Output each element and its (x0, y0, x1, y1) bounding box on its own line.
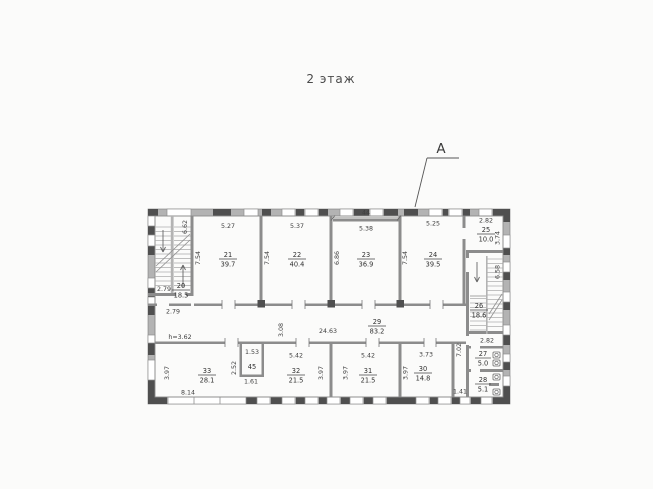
room-number: 33 (203, 367, 211, 375)
room-area: 5.1 (478, 386, 489, 394)
room-label-21: 21 39.7 (219, 251, 237, 269)
window-opening (244, 209, 258, 216)
partition-wall (155, 342, 225, 345)
window-opening (449, 209, 462, 216)
room-area: 28.1 (200, 377, 215, 385)
window-opening (503, 292, 510, 302)
room-area: 10.0 (479, 236, 494, 244)
partition-wall (333, 219, 399, 222)
dim-3-97-room30: 3.97 (403, 366, 410, 380)
wall-pier (471, 397, 481, 404)
wall-pier (503, 386, 510, 397)
window-opening (305, 397, 318, 404)
partition-wall (309, 342, 366, 345)
window-opening (148, 335, 155, 343)
partition-wall (191, 216, 194, 296)
room-number: 22 (293, 251, 301, 259)
partition-wall (240, 344, 243, 377)
window-opening (429, 209, 442, 216)
page-title: 2 этаж (306, 72, 355, 86)
dim-5-42-room32: 5.42 (289, 353, 303, 360)
dim-7-54-room21: 7.54 (195, 251, 202, 265)
partition-wall (330, 344, 333, 397)
partition-wall (480, 369, 503, 372)
window-opening (460, 397, 470, 404)
partition-wall (169, 304, 191, 307)
window-opening (305, 209, 318, 216)
window-opening (503, 354, 510, 362)
window-opening (340, 209, 353, 216)
partition-wall (466, 250, 503, 253)
room-label-30: 30 14.8 (414, 365, 432, 383)
window-opening (168, 397, 246, 404)
toilet-icon (493, 389, 500, 395)
room-label-23: 23 36.9 (357, 251, 375, 269)
partition-wall (443, 304, 466, 307)
wall-pier (404, 209, 418, 216)
dim-3-97-room32: 3.97 (318, 366, 325, 380)
room-area: 18.5 (174, 292, 189, 300)
pilaster (258, 300, 266, 308)
wall-pier (503, 209, 510, 222)
wall-pier (148, 246, 155, 255)
window-opening (370, 209, 383, 216)
partition-wall (262, 344, 265, 377)
room-number: 27 (479, 350, 487, 358)
section-marker: A (415, 141, 459, 207)
wall-pier (148, 380, 155, 397)
dim-6-58: 6.58 (495, 265, 502, 279)
room-label-32: 32 21.5 (287, 367, 305, 385)
dim-1-61: 1.61 (244, 379, 258, 386)
window-opening (503, 376, 510, 386)
wall-pier (463, 209, 470, 216)
wall-pier (271, 397, 282, 404)
window-opening (148, 216, 155, 226)
partition-wall (240, 375, 265, 378)
partition-wall (466, 272, 469, 334)
window-opening (282, 397, 295, 404)
pilaster (397, 300, 405, 308)
room-number: 29 (373, 318, 381, 326)
wall-pier (319, 209, 328, 216)
window-opening (503, 325, 510, 335)
toilet-icon (493, 374, 500, 380)
dim-3-74: 3.74 (495, 231, 502, 245)
dim-6-62: 6.62 (182, 220, 189, 234)
dim-2-79-inner: 2.79 (157, 286, 171, 293)
room-number: 20 (177, 282, 185, 290)
dim-3-73: 3.73 (419, 352, 433, 359)
wall-pier (148, 305, 155, 315)
dim-3-08: 3.08 (278, 323, 285, 337)
dim-7-54-room24: 7.54 (402, 251, 409, 265)
room-label-28: 28 5.1 (475, 376, 491, 394)
window-opening (148, 360, 155, 380)
partition-wall (238, 342, 296, 345)
partition-wall (480, 346, 503, 349)
wall-pier (503, 272, 510, 280)
room-area: 36.9 (359, 261, 374, 269)
wall-pier (503, 362, 510, 370)
wall-pier (246, 397, 257, 404)
window-opening (503, 262, 510, 272)
dim-1-53: 1.53 (245, 349, 259, 356)
room-area: 21.5 (361, 377, 376, 385)
room-number: 25 (482, 226, 490, 234)
partition-wall (148, 293, 176, 296)
room-number: 32 (292, 367, 300, 375)
room-area: 39.7 (221, 261, 236, 269)
partition-wall (194, 304, 222, 307)
room-label-22: 22 40.4 (288, 251, 306, 269)
partition-wall (399, 344, 402, 397)
wall-pier (262, 209, 271, 216)
window-opening (479, 209, 492, 216)
dim-5-38: 5.38 (359, 226, 373, 233)
wall-pier (148, 226, 155, 235)
room-area: 18.6 (472, 312, 487, 320)
wall-pier (341, 397, 350, 404)
wall-pier (148, 343, 155, 355)
room-number: 45 (248, 363, 256, 371)
dim-5-25: 5.25 (426, 221, 440, 228)
stair-stringer (486, 256, 488, 334)
partition-wall (466, 331, 503, 334)
section-marker-leader-line (415, 158, 427, 207)
room-number: 31 (364, 367, 372, 375)
wall-pier (319, 397, 327, 404)
toilet-icon (493, 360, 500, 366)
window-opening (327, 397, 340, 404)
wall-pier (503, 248, 510, 255)
stair-stringer (171, 216, 174, 293)
pilaster (328, 300, 336, 308)
window-opening (416, 397, 429, 404)
section-marker-label: A (436, 141, 446, 157)
partition-wall (148, 304, 157, 307)
window-opening (438, 397, 451, 404)
room-label-33: 33 28.1 (198, 367, 216, 385)
floor-plan-drawing: 2 этаж A 2.79 2.79 6.62 5.27 5.37 44 5.3… (0, 0, 653, 489)
dim-5-27: 5.27 (221, 223, 235, 230)
room-area: 14.8 (416, 375, 431, 383)
dim-6-86-room23: 6.86 (334, 251, 341, 265)
window-opening (148, 235, 155, 246)
dim-5-42-room31: 5.42 (361, 353, 375, 360)
dim-2-82-top: 2.82 (479, 218, 493, 225)
room-area: 83.2 (370, 328, 385, 336)
wall-pier (503, 335, 510, 345)
floor-plan-page: 2 этаж A 2.79 2.79 6.62 5.27 5.37 44 5.3… (0, 0, 653, 489)
toilet-icon (493, 352, 500, 358)
sink-icon (489, 383, 499, 386)
room-label-45: 45 (248, 363, 256, 371)
room-number: 26 (475, 302, 483, 310)
window-opening (350, 397, 363, 404)
window-opening (282, 209, 295, 216)
dim-2-79-lower: 2.79 (166, 309, 180, 316)
partition-wall (260, 216, 263, 304)
wall-pier (387, 397, 416, 404)
ceiling-height-note: h=3.62 (168, 334, 191, 341)
dim-7-02: 7.02 (456, 343, 463, 357)
room-label-29: 29 83.2 (368, 318, 386, 336)
wall-pier (213, 209, 231, 216)
wall-pier (503, 302, 510, 310)
wc-fixtures (489, 352, 500, 395)
wall-pier (443, 209, 448, 216)
window-opening (167, 209, 191, 216)
wall-pier (296, 209, 304, 216)
dim-44: 44 (362, 210, 370, 217)
partition-wall (463, 239, 466, 306)
partition-wall (466, 334, 469, 336)
room-label-20: 20 18.5 (172, 282, 190, 300)
window-opening (373, 397, 386, 404)
dim-2-52: 2.52 (231, 361, 238, 375)
room-label-27: 27 5.0 (475, 350, 491, 368)
interior-partitions (148, 216, 503, 397)
room-number: 23 (362, 251, 370, 259)
room-number: 30 (419, 365, 427, 373)
wall-pier (148, 397, 167, 404)
dim-7-54-room22: 7.54 (264, 251, 271, 265)
room-label-24: 24 39.5 (424, 251, 442, 269)
room-area: 5.0 (478, 360, 489, 368)
window-opening (503, 235, 510, 248)
wall-pier (452, 397, 460, 404)
dim-5-37: 5.37 (290, 223, 304, 230)
dim-3-97-room33: 3.97 (164, 366, 171, 380)
room-number: 24 (429, 251, 437, 259)
partition-wall (463, 216, 466, 228)
dim-8-14: 8.14 (181, 390, 195, 397)
room-label-25: 25 10.0 (477, 226, 495, 244)
partition-wall (469, 369, 471, 372)
wall-pier (296, 397, 305, 404)
partition-wall (469, 346, 471, 349)
dim-2-82-vestibule: 2.82 (480, 338, 494, 345)
wall-pier (430, 397, 438, 404)
wall-pier (493, 397, 510, 404)
room-area: 39.5 (426, 261, 441, 269)
room-number: 21 (224, 251, 232, 259)
wall-pier (148, 209, 155, 216)
partition-wall (466, 253, 469, 258)
stair-break-line (489, 300, 502, 320)
partition-wall (330, 216, 333, 304)
window-opening (257, 397, 270, 404)
room-area: 40.4 (290, 261, 305, 269)
window-opening (148, 278, 155, 288)
partition-wall (379, 342, 424, 345)
room-label-31: 31 21.5 (359, 367, 377, 385)
room-label-26: 26 18.6 (470, 302, 488, 320)
staircases (155, 216, 503, 334)
window-opening (481, 397, 492, 404)
room-number: 28 (479, 376, 487, 384)
room-area: 21.5 (289, 377, 304, 385)
wall-pier (364, 397, 373, 404)
wall-pier (384, 209, 398, 216)
dim-1-41: 1.41 (453, 389, 467, 396)
dim-3-97-room31: 3.97 (343, 366, 350, 380)
dim-24-63: 24.63 (319, 328, 337, 335)
